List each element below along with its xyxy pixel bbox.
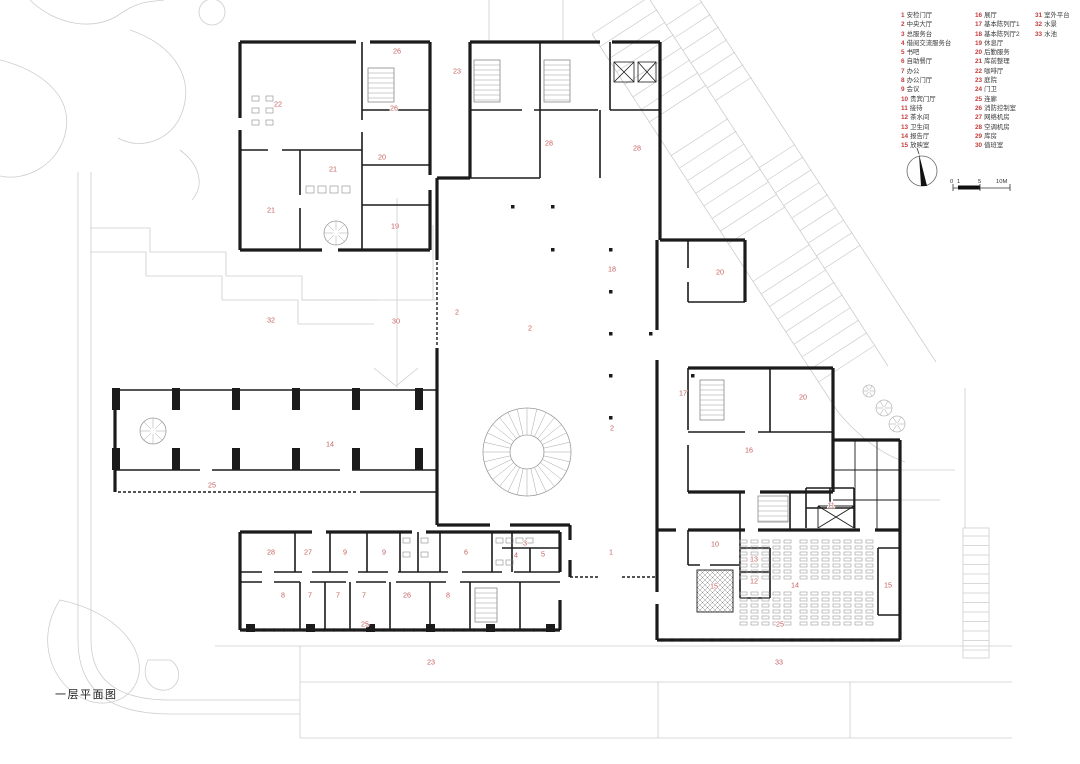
legend-item-label: 贵宾门厅 <box>910 96 936 103</box>
legend-item-number: 29 <box>975 133 982 140</box>
room-number-marker: 19 <box>391 222 399 231</box>
room-number-marker: 7 <box>336 591 340 600</box>
legend-item-label: 库房 <box>984 133 997 140</box>
legend-item-number: 23 <box>975 77 982 84</box>
legend-item-number: 24 <box>975 86 982 93</box>
room-number-marker: 5 <box>541 550 545 559</box>
room-number-marker: 14 <box>791 581 799 590</box>
legend-item-label: 总服务台 <box>907 31 933 38</box>
legend-item-number: 16 <box>975 12 982 19</box>
legend-item-label: 报告厅 <box>910 133 929 140</box>
legend-item-number: 31 <box>1035 12 1042 19</box>
legend-item: 2中央大厅 <box>901 20 951 29</box>
legend-item-label: 会议 <box>907 86 920 93</box>
legend-item: 32水景 <box>1035 20 1070 29</box>
room-number-marker: 15 <box>884 581 892 590</box>
legend-item-number: 4 <box>901 40 905 47</box>
scale-bar: 0 1 5 10M <box>950 179 1010 191</box>
legend-column: 1安检门厅2中央大厅3总服务台4借阅交流服务台5书吧6自助餐厅7办公8办公门厅9… <box>901 11 951 150</box>
elevator-symbols <box>614 62 656 82</box>
thin-partitions <box>818 440 900 530</box>
legend-item-number: 20 <box>975 49 982 56</box>
legend-item-label: 展厅 <box>984 12 997 19</box>
legend-item-label: 水池 <box>1044 31 1057 38</box>
legend-item: 11接待 <box>901 104 951 113</box>
legend-item: 28空调机房 <box>975 123 1020 132</box>
legend-item-number: 1 <box>901 12 905 19</box>
legend-item-number: 26 <box>975 105 982 112</box>
legend-item-number: 15 <box>901 142 908 149</box>
legend-item-label: 放映室 <box>910 142 929 149</box>
legend-item: 20后勤服务 <box>975 48 1020 57</box>
room-number-marker: 25 <box>776 620 784 629</box>
legend-item-number: 17 <box>975 21 982 28</box>
room-number-marker: 10 <box>711 540 719 549</box>
legend-item-label: 书吧 <box>907 49 920 56</box>
legend-item-number: 9 <box>901 86 905 93</box>
room-number-marker: 8 <box>446 591 450 600</box>
room-number-marker: 11 <box>827 501 834 510</box>
legend-item: 29库房 <box>975 132 1020 141</box>
legend-column: 16展厅17基本陈列厅118基本陈列厅219休息厅20后勤服务21库前整理22咖… <box>975 11 1020 150</box>
north-arrow <box>907 148 937 186</box>
room-number-marker: 13 <box>750 555 758 564</box>
room-number-marker: 7 <box>362 591 366 600</box>
room-number-marker: 26 <box>393 47 401 56</box>
legend-item: 10贵宾门厅 <box>901 95 951 104</box>
room-number-marker: 6 <box>464 548 468 557</box>
legend-item-label: 值班室 <box>984 142 1003 149</box>
interior-walls <box>115 42 900 630</box>
legend-item: 8办公门厅 <box>901 76 951 85</box>
legend-item-label: 卫生间 <box>910 124 929 131</box>
room-number-marker: 23 <box>427 658 435 667</box>
legend-item-number: 14 <box>901 133 908 140</box>
legend-item-number: 22 <box>975 68 982 75</box>
room-number-marker: 12 <box>750 577 758 586</box>
legend-item-label: 办公 <box>907 68 920 75</box>
exterior-walls <box>115 42 900 640</box>
legend-item: 1安检门厅 <box>901 11 951 20</box>
legend-item: 18基本陈列厅2 <box>975 30 1020 39</box>
legend-item: 12茶水间 <box>901 113 951 122</box>
room-number-marker: 20 <box>378 153 386 162</box>
legend-item: 23庭院 <box>975 76 1020 85</box>
room-number-marker: 17 <box>679 389 687 398</box>
legend-item: 30值班室 <box>975 141 1020 150</box>
room-number-marker: 22 <box>274 100 282 109</box>
legend-item-label: 网络机房 <box>984 114 1010 121</box>
legend-item-label: 咖啡厅 <box>984 68 1003 75</box>
room-number-marker: 4 <box>514 551 518 560</box>
scale-label-10m: 10M <box>996 179 1007 185</box>
room-number-marker: 3 <box>523 539 527 548</box>
legend-item: 14报告厅 <box>901 132 951 141</box>
column-dots <box>511 205 695 420</box>
legend-item: 16展厅 <box>975 11 1020 20</box>
legend-item-number: 13 <box>901 124 908 131</box>
legend-item-number: 27 <box>975 114 982 121</box>
room-number-marker: 2 <box>610 424 614 433</box>
room-number-marker: 1 <box>609 548 613 557</box>
room-number-marker: 33 <box>775 658 783 667</box>
legend-item-number: 10 <box>901 96 908 103</box>
legend-item-number: 8 <box>901 77 905 84</box>
room-number-marker: 28 <box>633 144 641 153</box>
furniture-symbols <box>252 96 533 565</box>
room-number-marker: 15 <box>710 582 718 591</box>
legend-item-label: 后勤服务 <box>984 49 1010 56</box>
legend-item-number: 30 <box>975 142 982 149</box>
legend-item: 26消防控制室 <box>975 104 1020 113</box>
room-number-marker: 21 <box>329 165 337 174</box>
room-number-marker: 25 <box>208 481 216 490</box>
room-number-marker: 16 <box>745 446 753 455</box>
room-number-marker: 20 <box>799 393 807 402</box>
plan-details-generated <box>140 221 905 496</box>
room-number-marker: 20 <box>716 268 724 277</box>
legend-item: 33水池 <box>1035 30 1070 39</box>
room-number-marker: 23 <box>453 67 461 76</box>
stage-hatch <box>697 570 733 612</box>
legend-item-label: 基本陈列厅2 <box>984 31 1020 38</box>
legend-item-label: 办公门厅 <box>907 77 933 84</box>
room-number-marker: 7 <box>308 591 312 600</box>
legend-item: 22咖啡厅 <box>975 67 1020 76</box>
room-number-marker: 14 <box>326 440 334 449</box>
legend-item-label: 中央大厅 <box>907 21 933 28</box>
structural-piers <box>112 388 555 632</box>
room-number-marker: 26 <box>390 104 398 113</box>
legend-item: 17基本陈列厅1 <box>975 20 1020 29</box>
room-number-marker: 8 <box>281 591 285 600</box>
legend-item-label: 门卫 <box>984 86 997 93</box>
legend-item: 6自助餐厅 <box>901 57 951 66</box>
drawing-title: 一层平面图 <box>55 686 118 702</box>
legend-item: 4借阅交流服务台 <box>901 39 951 48</box>
legend-item-number: 28 <box>975 124 982 131</box>
legend-item-label: 接待 <box>910 105 923 112</box>
legend-item-number: 21 <box>975 58 982 65</box>
room-number-marker: 9 <box>382 548 386 557</box>
legend-item-label: 空调机房 <box>984 124 1010 131</box>
legend-item: 21库前整理 <box>975 57 1020 66</box>
room-number-marker: 28 <box>267 548 275 557</box>
room-number-marker: 30 <box>392 317 400 326</box>
legend-item: 15放映室 <box>901 141 951 150</box>
legend-item-label: 连廊 <box>984 96 997 103</box>
legend-item-label: 室外平台 <box>1044 12 1070 19</box>
room-number-marker: 27 <box>304 548 312 557</box>
legend-item: 27网络机房 <box>975 113 1020 122</box>
legend-item: 19休息厅 <box>975 39 1020 48</box>
legend-item-label: 水景 <box>1044 21 1057 28</box>
room-number-marker: 9 <box>343 548 347 557</box>
legend-item-number: 6 <box>901 58 905 65</box>
legend-item-number: 5 <box>901 49 905 56</box>
legend-item-number: 32 <box>1035 21 1042 28</box>
room-number-marker: 25 <box>361 620 369 629</box>
glazed-walls <box>118 262 657 577</box>
legend-item: 9会议 <box>901 85 951 94</box>
legend-item-label: 库前整理 <box>984 58 1010 65</box>
legend-item-label: 安检门厅 <box>907 12 933 19</box>
legend-item: 5书吧 <box>901 48 951 57</box>
legend-item-number: 18 <box>975 31 982 38</box>
legend-item-label: 消防控制室 <box>984 105 1016 112</box>
legend-item: 3总服务台 <box>901 30 951 39</box>
legend-item: 31室外平台 <box>1035 11 1070 20</box>
scale-label-1: 1 <box>957 179 960 185</box>
room-number-marker: 2 <box>528 324 532 333</box>
legend-item: 7办公 <box>901 67 951 76</box>
room-number-marker: 28 <box>545 139 553 148</box>
legend-item: 24门卫 <box>975 85 1020 94</box>
room-number-marker: 2 <box>455 308 459 317</box>
legend-item: 25连廊 <box>975 95 1020 104</box>
legend-item-number: 25 <box>975 96 982 103</box>
legend-item-label: 基本陈列厅1 <box>984 21 1020 28</box>
legend-item-label: 庭院 <box>984 77 997 84</box>
legend-item: 13卫生间 <box>901 123 951 132</box>
room-number-marker: 32 <box>267 316 275 325</box>
legend-item-number: 12 <box>901 114 908 121</box>
legend-item-number: 11 <box>901 105 908 112</box>
legend-item-number: 7 <box>901 68 905 75</box>
legend-item-number: 33 <box>1035 31 1042 38</box>
room-number-marker: 26 <box>403 591 411 600</box>
room-number-marker: 18 <box>608 265 616 274</box>
room-number-marker: 21 <box>267 206 275 215</box>
legend-item-number: 19 <box>975 40 982 47</box>
floor-plan-page: 0 1 5 10M 262322262828202121191820232302… <box>0 0 1080 764</box>
legend-item-number: 3 <box>901 31 905 38</box>
legend-item-label: 茶水间 <box>910 114 929 121</box>
legend-item-label: 休息厅 <box>984 40 1003 47</box>
legend-item-number: 2 <box>901 21 905 28</box>
legend-item-label: 自助餐厅 <box>907 58 933 65</box>
legend-column: 31室外平台32水景33水池 <box>1035 11 1070 39</box>
auditorium-seats <box>740 540 873 625</box>
room-number-markers: 2623222628282021211918202323021720214162… <box>208 47 892 667</box>
legend-item-label: 借阅交流服务台 <box>907 40 952 47</box>
